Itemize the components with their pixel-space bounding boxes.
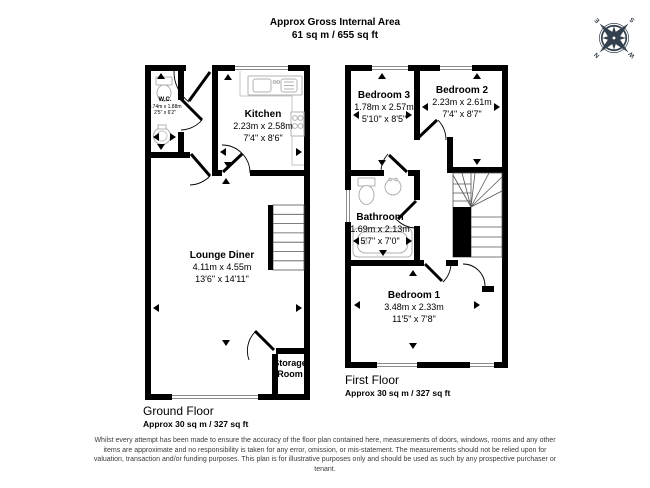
title-line-1: Approx Gross Internal Area xyxy=(100,16,570,29)
wc-room-label: W.C. 0.74m x 1.88m 2'5" x 6'2" xyxy=(144,97,186,116)
wc-sink-icon xyxy=(154,125,171,145)
room-dims-metric: 1.78m x 2.57m xyxy=(345,102,423,114)
floor-area: Approx 30 sq m / 327 sq ft xyxy=(345,388,450,399)
floor-name: First Floor xyxy=(345,373,450,388)
room-name: Kitchen xyxy=(222,109,304,121)
room-dims-imperial: 7'4" x 8'6" xyxy=(222,133,304,145)
room-name: W.C. xyxy=(144,97,186,104)
room-dims-metric: 2.23m x 2.61m xyxy=(423,97,501,109)
compass-rose-icon: N E S W xyxy=(584,8,644,68)
kitchen-sink-icon xyxy=(248,76,302,95)
room-dims-metric: 1.69m x 2.13m xyxy=(340,224,420,236)
first-floor-caption: First Floor Approx 30 sq m / 327 sq ft xyxy=(345,373,450,399)
room-dims-metric: 2.23m x 2.58m xyxy=(222,121,304,133)
room-name: Bedroom 2 xyxy=(423,85,501,97)
kitchen-room-label: Kitchen 2.23m x 2.58m 7'4" x 8'6" xyxy=(222,109,304,144)
title-line-2: 61 sq m / 655 sq ft xyxy=(100,29,570,42)
floor-plan-page: Approx Gross Internal Area 61 sq m / 655… xyxy=(0,0,650,488)
room-name: Bedroom 1 xyxy=(369,290,459,302)
room-name: Storage Room xyxy=(268,358,312,380)
compass-n-label: N xyxy=(593,51,601,59)
room-dims-imperial: 2'5" x 6'2" xyxy=(144,110,186,116)
bedroom3-room-label: Bedroom 3 1.78m x 2.57m 5'10" x 8'5" xyxy=(345,90,423,125)
floor-area: Approx 30 sq m / 327 sq ft xyxy=(143,419,248,430)
page-title: Approx Gross Internal Area 61 sq m / 655… xyxy=(100,16,570,42)
bedroom2-room-label: Bedroom 2 2.23m x 2.61m 7'4" x 8'7" xyxy=(423,85,501,120)
ground-floor-caption: Ground Floor Approx 30 sq m / 327 sq ft xyxy=(143,404,248,430)
room-dims-imperial: 13'6" x 14'11" xyxy=(167,274,277,286)
room-name: Bedroom 3 xyxy=(345,90,423,102)
room-dims-imperial: 5'7" x 7'0" xyxy=(340,236,420,248)
disclaimer-text: Whilst every attempt has been made to en… xyxy=(88,436,562,475)
room-name: Lounge Diner xyxy=(167,250,277,262)
bathroom-room-label: Bathroom 1.69m x 2.13m 5'7" x 7'0" xyxy=(340,212,420,247)
bathroom-toilet-icon xyxy=(358,178,375,205)
room-dims-metric: 4.11m x 4.55m xyxy=(167,262,277,274)
compass-s-label: S xyxy=(629,16,637,24)
room-name: Bathroom xyxy=(340,212,420,224)
storage-room-label: Storage Room xyxy=(268,358,312,380)
lounge-diner-room-label: Lounge Diner 4.11m x 4.55m 13'6" x 14'11… xyxy=(167,250,277,285)
compass-e-label: E xyxy=(593,16,601,24)
front-door-opening xyxy=(186,65,212,71)
first-stairs-icon xyxy=(453,173,502,257)
bedroom1-room-label: Bedroom 1 3.48m x 2.33m 11'5" x 7'8" xyxy=(369,290,459,325)
room-dims-metric: 3.48m x 2.33m xyxy=(369,302,459,314)
bathroom-basin-icon xyxy=(385,178,401,195)
room-dims-imperial: 11'5" x 7'8" xyxy=(369,314,459,326)
compass-w-label: W xyxy=(627,50,636,59)
room-dims-imperial: 7'4" x 8'7" xyxy=(423,109,501,121)
floor-name: Ground Floor xyxy=(143,404,248,419)
room-dims-imperial: 5'10" x 8'5" xyxy=(345,114,423,126)
